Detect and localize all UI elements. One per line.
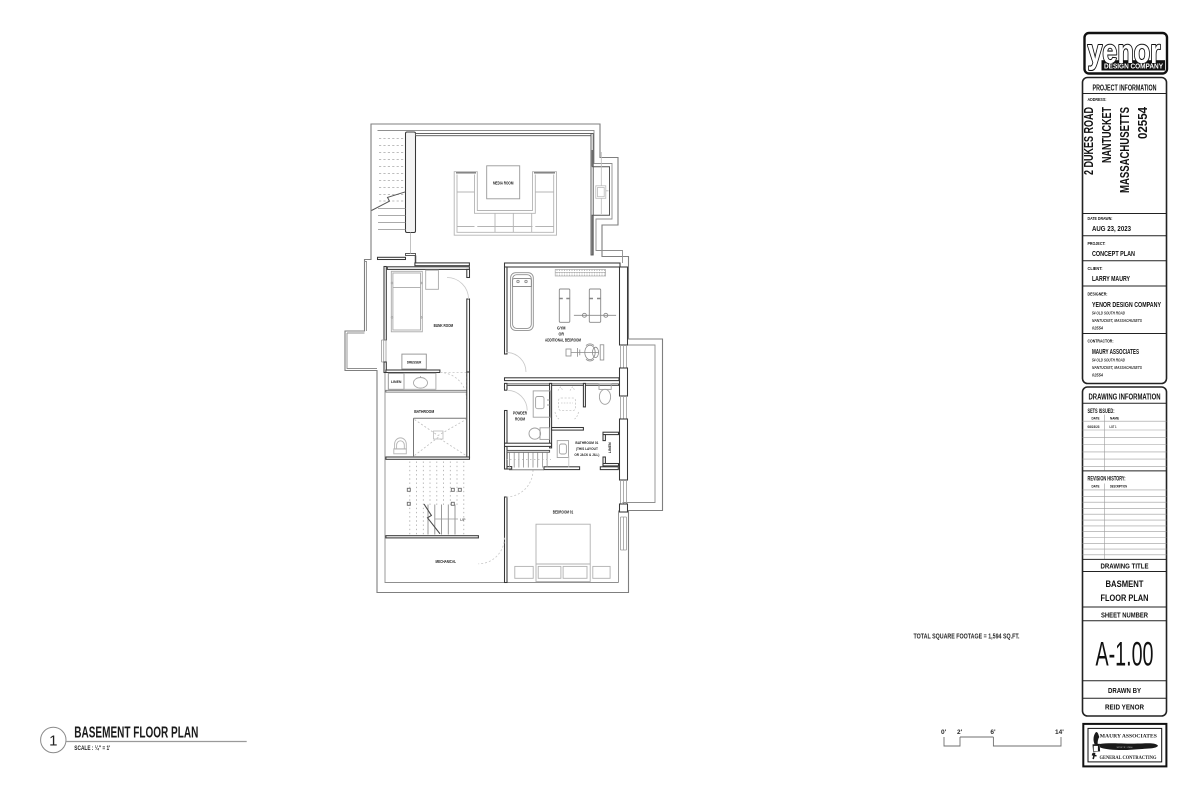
svg-text:02554: 02554 <box>1135 106 1150 139</box>
svg-text:02554: 02554 <box>1092 372 1103 378</box>
svg-text:DATE: DATE <box>1092 416 1101 420</box>
svg-text:ADDITIONAL BEDROOM: ADDITIONAL BEDROOM <box>545 337 581 342</box>
svg-text:REID YENOR: REID YENOR <box>1105 704 1144 711</box>
svg-text:08/23/23: 08/23/23 <box>1088 425 1100 429</box>
svg-text:OR: OR <box>559 332 565 337</box>
svg-text:SCALE : ¼" = 1': SCALE : ¼" = 1' <box>74 745 110 752</box>
svg-text:54 OLD SOUTH ROAD: 54 OLD SOUTH ROAD <box>1092 310 1125 316</box>
svg-text:OR JACK & JILL): OR JACK & JILL) <box>574 452 600 457</box>
svg-text:CONTRACTOR:: CONTRACTOR: <box>1088 338 1114 344</box>
svg-text:LOT 1: LOT 1 <box>1110 425 1117 429</box>
svg-text:DESIGN COMPANY: DESIGN COMPANY <box>1104 62 1163 71</box>
svg-text:DRAWING INFORMATION: DRAWING INFORMATION <box>1089 393 1161 402</box>
svg-text:NAME: NAME <box>1110 416 1120 420</box>
svg-text:MASSACHUSETTS: MASSACHUSETTS <box>1117 107 1132 193</box>
svg-text:FLOOR PLAN: FLOOR PLAN <box>1101 593 1149 604</box>
svg-text:0': 0' <box>941 729 947 736</box>
svg-text:BEDROOM 01: BEDROOM 01 <box>553 509 574 514</box>
svg-text:MAURY ASSOCIATES: MAURY ASSOCIATES <box>1100 733 1157 739</box>
svg-text:MEDIA ROOM: MEDIA ROOM <box>493 181 514 186</box>
svg-text:1: 1 <box>49 733 57 750</box>
svg-text:PROJECT INFORMATION: PROJECT INFORMATION <box>1093 84 1157 93</box>
svg-text:PROJECT:: PROJECT: <box>1088 241 1106 247</box>
svg-text:DRAWN BY: DRAWN BY <box>1108 688 1141 695</box>
svg-text:6': 6' <box>990 729 996 736</box>
svg-text:02554: 02554 <box>1092 325 1103 331</box>
svg-text:54 OLD SOUTH ROAD: 54 OLD SOUTH ROAD <box>1092 357 1125 363</box>
svg-text:2': 2' <box>957 729 963 736</box>
svg-text:BATHROOM 01: BATHROOM 01 <box>575 440 599 445</box>
svg-text:DESCRIPTION: DESCRIPTION <box>1110 485 1127 489</box>
svg-text:A-1.00: A-1.00 <box>1096 636 1154 674</box>
svg-text:LARRY MAURY: LARRY MAURY <box>1092 274 1130 283</box>
svg-text:NANTUCKET: NANTUCKET <box>1099 107 1114 163</box>
svg-text:CONCEPT PLAN: CONCEPT PLAN <box>1092 249 1135 258</box>
svg-text:NANTUCKET, MASSACHUSETS: NANTUCKET, MASSACHUSETS <box>1092 318 1143 324</box>
svg-text:DATE: DATE <box>1092 485 1101 489</box>
svg-text:TOTAL SQUARE FOOTAGE = 1,594 S: TOTAL SQUARE FOOTAGE = 1,594 SQ.FT. <box>914 632 1020 641</box>
svg-text:ADDRESS:: ADDRESS: <box>1088 97 1107 103</box>
svg-text:REVISION HISTORY:: REVISION HISTORY: <box>1088 477 1126 483</box>
svg-text:BASEMENT FLOOR PLAN: BASEMENT FLOOR PLAN <box>74 724 198 741</box>
svg-text:LINEN: LINEN <box>391 380 402 384</box>
svg-text:DRESSER: DRESSER <box>407 360 422 365</box>
svg-text:SHEET NUMBER: SHEET NUMBER <box>1101 612 1148 619</box>
svg-text:UP: UP <box>460 517 466 522</box>
svg-text:MECHANICAL: MECHANICAL <box>436 559 457 564</box>
svg-text:DRAWING TITLE: DRAWING TITLE <box>1101 563 1149 570</box>
svg-text:BATHROOM: BATHROOM <box>414 409 434 414</box>
svg-text:2 DUKES ROAD: 2 DUKES ROAD <box>1081 107 1096 175</box>
svg-text:SETS ISSUED:: SETS ISSUED: <box>1088 409 1115 415</box>
svg-text:BASMENT: BASMENT <box>1106 579 1144 590</box>
svg-text:DESIGNER:: DESIGNER: <box>1088 291 1108 297</box>
svg-text:(THIS LAYOUT: (THIS LAYOUT <box>576 446 599 451</box>
svg-text:CLIENT:: CLIENT: <box>1088 266 1103 272</box>
svg-text:14': 14' <box>1055 729 1064 736</box>
svg-text:LINEN: LINEN <box>608 442 612 453</box>
svg-text:DATE DRAWN:: DATE DRAWN: <box>1088 216 1113 222</box>
svg-text:POWDER: POWDER <box>513 411 527 416</box>
svg-text:GENERAL CONTRACTING: GENERAL CONTRACTING <box>1100 756 1157 761</box>
svg-text:ROOM: ROOM <box>515 417 525 422</box>
svg-text:GYM: GYM <box>557 326 566 331</box>
svg-text:NANTUCKET, MASSACHUSETS: NANTUCKET, MASSACHUSETS <box>1092 365 1143 371</box>
svg-text:BUNK ROOM: BUNK ROOM <box>434 323 454 328</box>
svg-text:YENOR DESIGN COMPANY: YENOR DESIGN COMPANY <box>1092 302 1161 309</box>
svg-text:AUG 23, 2023: AUG 23, 2023 <box>1092 224 1131 233</box>
svg-text:SINCE 1984: SINCE 1984 <box>1117 746 1134 749</box>
svg-text:MAURY ASSOCIATES: MAURY ASSOCIATES <box>1092 349 1139 356</box>
